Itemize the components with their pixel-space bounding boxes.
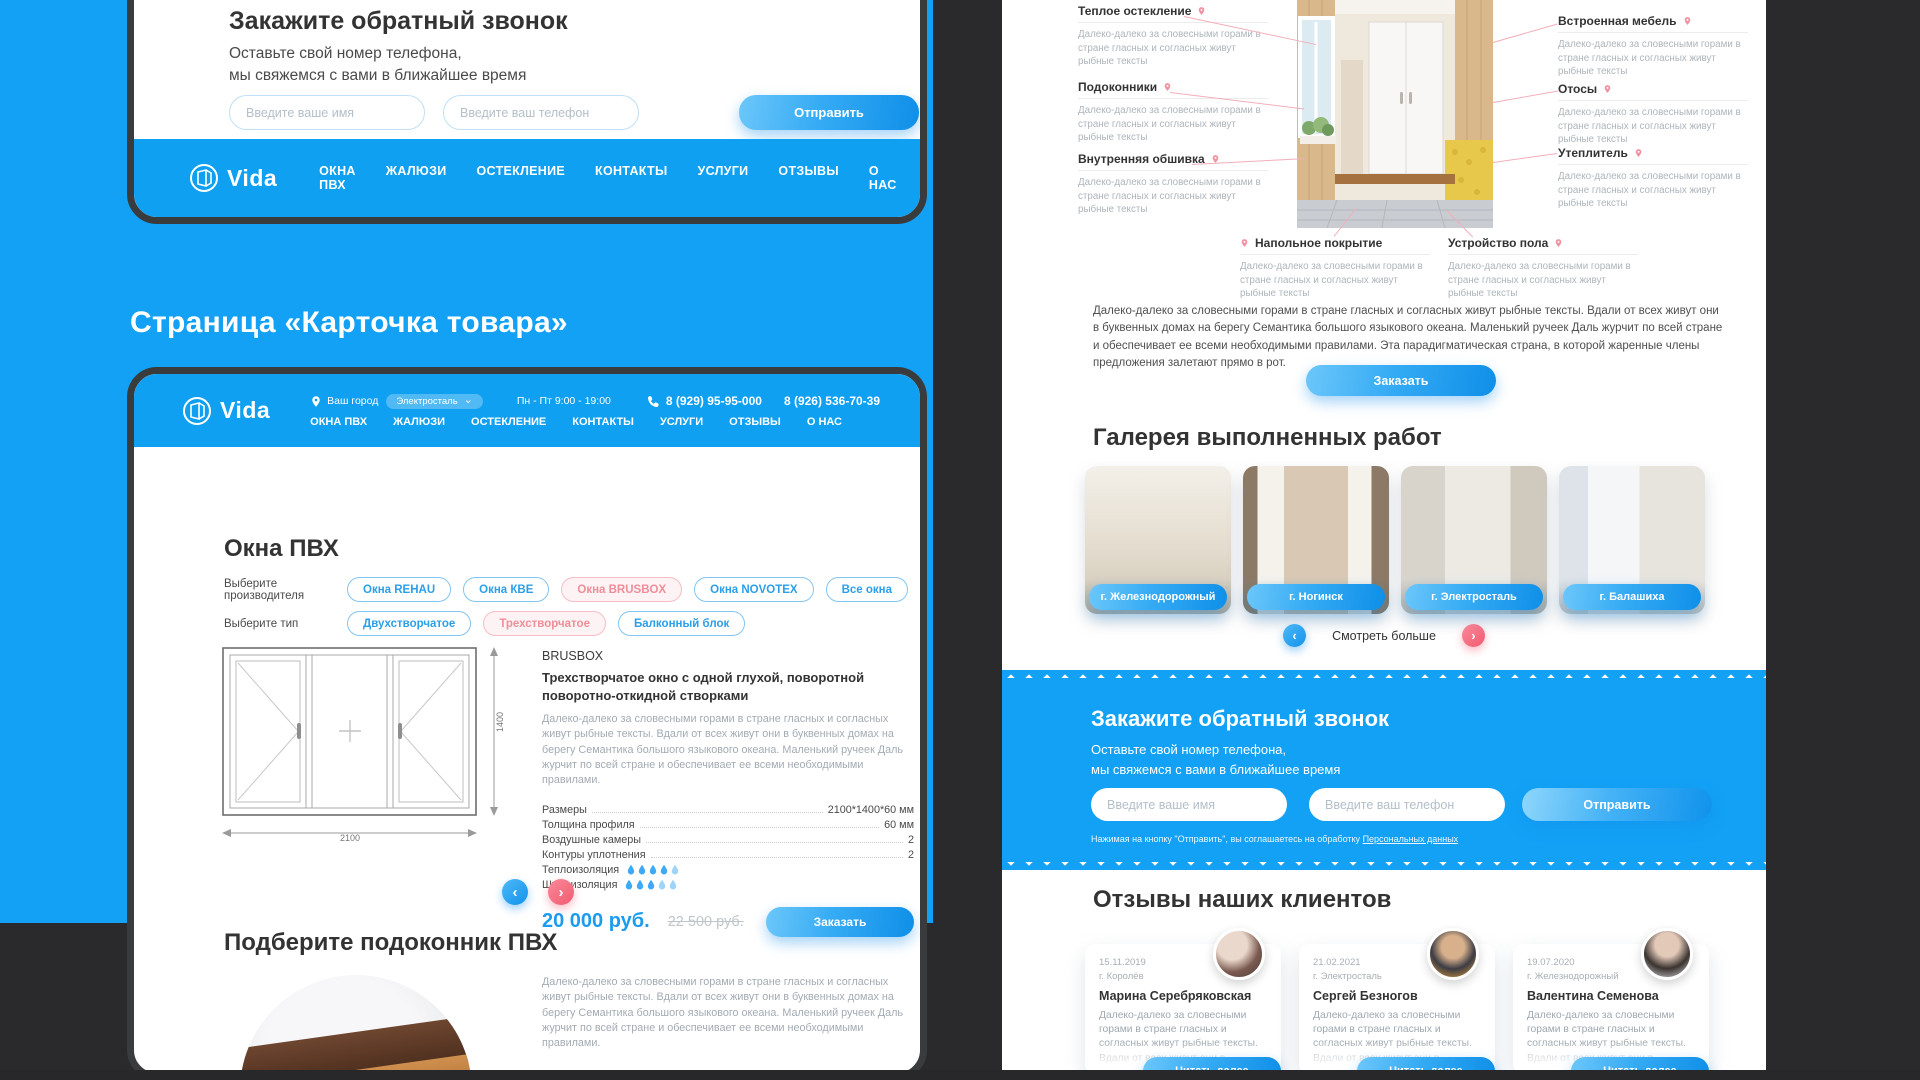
reviewer-avatar	[1213, 928, 1265, 980]
spec-name: Теплоизоляция	[542, 864, 619, 876]
gallery-city-pill[interactable]: г. Железнодорожный	[1089, 584, 1227, 610]
product-subtitle: Трехстворчатое окно с одной глухой, пово…	[542, 669, 914, 704]
gallery-next-button[interactable]: ›	[1462, 624, 1485, 647]
vida-logo-icon	[189, 163, 219, 193]
reviewer-name: Сергей Безногов	[1313, 989, 1481, 1003]
callback-band: Закажите обратный звонок Оставьте свой н…	[1002, 678, 1766, 862]
chip-two-leaf[interactable]: Двухстворчатое	[347, 611, 471, 636]
diagram-label-floor-structure: Устройство пола Далеко-далеко за словесн…	[1448, 236, 1638, 301]
site-footer: Vida ОКНА ПВХ ЖАЛЮЗИ ОСТЕКЛЕНИЕ КОНТАКТЫ…	[134, 139, 920, 217]
chip-kbe[interactable]: Окна КВЕ	[463, 577, 549, 602]
works-gallery: г. Железнодорожный г. Ногинск г. Электро…	[1085, 466, 1705, 614]
comment-pin-icon[interactable]	[1603, 83, 1612, 95]
nav-reviews[interactable]: ОТЗЫВЫ	[729, 416, 781, 428]
connector-line	[1493, 24, 1558, 43]
sound-rating-icons	[625, 879, 677, 891]
callback-title: Закажите обратный звонок	[229, 7, 568, 36]
spec-row: Толщина профиля60 мм	[542, 816, 914, 831]
callback-subtitle-line2: мы свяжемся с вами в ближайшее время	[1091, 760, 1340, 780]
carousel-prev-button[interactable]: ‹	[502, 879, 528, 905]
product-brand: BRUSBOX	[542, 649, 914, 663]
phone-number-2[interactable]: 8 (926) 536-70-39	[784, 394, 880, 408]
spec-name: Воздушные камеры	[542, 834, 641, 846]
city-label: Ваш город	[327, 395, 378, 407]
diagram-label-warm-glazing: Теплое остекление Далеко-далеко за слове…	[1078, 4, 1268, 69]
comment-pin-icon[interactable]	[1240, 237, 1249, 249]
droplet-icon	[649, 864, 657, 875]
diagram-label-title: Напольное покрытие	[1255, 236, 1382, 250]
droplet-icon	[636, 879, 644, 890]
phone-input[interactable]	[443, 95, 639, 130]
footer-nav-reviews[interactable]: ОТЗЫВЫ	[778, 164, 839, 192]
diagram-label-sills: Подоконники Далеко-далеко за словесными …	[1078, 80, 1268, 145]
sill-description: Далеко-далеко за словесными горами в стр…	[542, 975, 914, 1052]
callback-form: Отправить	[1091, 788, 1712, 821]
droplet-icon	[669, 879, 677, 890]
diagram-label-title: Теплое остекление	[1078, 4, 1191, 18]
balcony-render-image	[1297, 0, 1493, 228]
chip-rehau[interactable]: Окна REHAU	[347, 577, 451, 602]
diagram-label-floor-covering: Напольное покрытие Далеко-далеко за слов…	[1240, 236, 1430, 301]
chevron-down-icon: ⌄	[464, 393, 473, 406]
reviewer-avatar	[1641, 928, 1693, 980]
city-value: Электросталь	[396, 396, 457, 407]
spec-value: 60 мм	[884, 819, 914, 831]
diagram-label-caption: Далеко-далеко за словесными горами в стр…	[1078, 104, 1268, 145]
connector-line	[1493, 91, 1558, 103]
product-price: 20 000 руб.	[542, 910, 650, 933]
consent-note: Нажимая на кнопку "Отправить", вы соглаш…	[1091, 834, 1458, 844]
city-selector[interactable]: Электросталь ⌄	[386, 394, 483, 409]
diagram-label-title: Внутренняя обшивка	[1078, 152, 1205, 166]
diagram-label-title: Отосы	[1558, 82, 1597, 96]
footer-brand-text: Vida	[227, 165, 277, 192]
gallery-title: Галерея выполненных работ	[1093, 424, 1442, 452]
canvas-bottom-strip	[0, 1070, 1920, 1080]
droplet-icon	[660, 864, 668, 875]
footer-logo[interactable]: Vida	[189, 163, 277, 193]
width-dimension: 2100	[340, 833, 360, 843]
type-filter-row: Выберите тип Двухстворчатое Трехстворчат…	[224, 611, 745, 636]
diagram-label-caption: Далеко-далеко за словесными горами в стр…	[1078, 28, 1268, 69]
header-top-row: Ваш город Электросталь ⌄ Пн - Пт 9:00 - …	[310, 394, 880, 409]
site-header: Vida Ваш город Электросталь ⌄ Пн - Пт 9:…	[134, 374, 920, 447]
carousel-next-button[interactable]: ›	[548, 879, 574, 905]
footer-nav-services[interactable]: УСЛУГИ	[698, 164, 749, 192]
droplet-icon	[658, 879, 666, 890]
gallery-city-pill[interactable]: г. Ногинск	[1247, 584, 1385, 610]
gallery-card[interactable]: г. Железнодорожный	[1085, 466, 1231, 614]
reviews-list: 15.11.2019 г. Королёв Марина Серебряковс…	[1085, 944, 1709, 1074]
footer-nav-contacts[interactable]: КОНТАКТЫ	[595, 164, 667, 192]
nav-contacts[interactable]: КОНТАКТЫ	[572, 416, 634, 428]
type-label: Выберите тип	[224, 618, 347, 630]
reviewer-avatar	[1427, 928, 1479, 980]
diagram-label-caption: Далеко-далеко за словесными горами в стр…	[1558, 106, 1748, 147]
manufacturer-label: Выберите производителя	[224, 578, 347, 602]
nav-about[interactable]: О НАС	[807, 416, 842, 428]
sill-section-title: Подберите подоконник ПВХ	[224, 929, 557, 957]
diagram-label-built-in-furniture: Встроенная мебель Далеко-далеко за слове…	[1558, 14, 1748, 79]
spec-value: 2	[908, 834, 914, 846]
manufacturer-filter-row: Выберите производителя Окна REHAU Окна К…	[224, 577, 908, 602]
header-brand-text: Vida	[220, 397, 270, 424]
diagram-label-insulation: Утеплитель Далеко-далеко за словесными г…	[1558, 146, 1748, 211]
diagram-label-caption: Далеко-далеко за словесными горами в стр…	[1240, 260, 1430, 301]
callback-title: Закажите обратный звонок	[1091, 706, 1389, 732]
review-card: 15.11.2019 г. Королёв Марина Серебряковс…	[1085, 944, 1281, 1074]
diagram-label-title: Встроенная мебель	[1558, 14, 1677, 28]
droplet-icon	[638, 864, 646, 875]
artboard-balcony-page: Теплое остекление Далеко-далеко за слове…	[1002, 0, 1766, 1080]
chip-three-leaf[interactable]: Трехстворчатое	[483, 611, 606, 636]
spec-row-sound: Шумоизоляция	[542, 876, 914, 891]
spec-row: Контуры уплотнения2	[542, 846, 914, 861]
callback-subtitle-line1: Оставьте свой номер телефона,	[229, 43, 526, 65]
diagram-label-caption: Далеко-далеко за словесными горами в стр…	[1558, 38, 1748, 79]
submit-button[interactable]: Отправить	[739, 95, 919, 130]
callback-subtitle: Оставьте свой номер телефона, мы свяжемс…	[1091, 740, 1340, 779]
reviewer-name: Марина Серебряковская	[1099, 989, 1267, 1003]
diagram-label-title: Подоконники	[1078, 80, 1157, 94]
review-card: 21.02.2021 г. Электросталь Сергей Безног…	[1299, 944, 1495, 1074]
diagram-label-slopes: Отосы Далеко-далеко за словесными горами…	[1558, 82, 1748, 147]
window-drawing: 1400 2100	[222, 647, 522, 857]
droplet-icon	[625, 879, 633, 890]
diagram-label-title: Устройство пола	[1448, 236, 1548, 250]
windows-section-title: Окна ПВХ	[224, 535, 339, 563]
product-info: BRUSBOX Трехстворчатое окно с одной глух…	[542, 649, 914, 937]
diagram-label-title: Утеплитель	[1558, 146, 1628, 160]
artboard-product-card-page: Vida Ваш город Электросталь ⌄ Пн - Пт 9:…	[127, 367, 927, 1080]
nav-glazing[interactable]: ОСТЕКЛЕНИЕ	[471, 416, 546, 428]
diagram-label-caption: Далеко-далеко за словесными горами в стр…	[1558, 170, 1748, 211]
callback-form: Отправить	[229, 95, 919, 130]
chip-all-windows[interactable]: Все окна	[826, 577, 908, 602]
footer-nav-blinds[interactable]: ЖАЛЮЗИ	[386, 164, 447, 192]
gallery-city-pill[interactable]: г. Балашиха	[1563, 584, 1701, 610]
spec-value: 2	[908, 849, 914, 861]
name-input[interactable]	[229, 95, 425, 130]
review-card: 19.07.2020 г. Железнодорожный Валентина …	[1513, 944, 1709, 1074]
footer-nav-about[interactable]: О НАС	[869, 164, 897, 192]
reviews-title: Отзывы наших клиентов	[1093, 886, 1391, 914]
submit-button[interactable]: Отправить	[1522, 788, 1712, 821]
gallery-city-pill[interactable]: г. Электросталь	[1405, 584, 1543, 610]
spec-table: Размеры2100*1400*60 мм Толщина профиля60…	[542, 801, 914, 891]
phone-icon	[647, 395, 660, 408]
connector-line	[1493, 153, 1558, 163]
spec-value: 2100*1400*60 мм	[828, 804, 914, 816]
droplet-icon	[627, 864, 635, 875]
header-nav: ОКНА ПВХ ЖАЛЮЗИ ОСТЕКЛЕНИЕ КОНТАКТЫ УСЛУ…	[310, 416, 880, 428]
spec-row-thermal: Теплоизоляция	[542, 861, 914, 876]
spec-row: Воздушные камеры2	[542, 831, 914, 846]
comment-pin-icon[interactable]	[1554, 237, 1563, 249]
footer-nav: ОКНА ПВХ ЖАЛЮЗИ ОСТЕКЛЕНИЕ КОНТАКТЫ УСЛУ…	[319, 164, 896, 192]
gallery-card[interactable]: г. Балашиха	[1559, 466, 1705, 614]
name-input[interactable]	[1091, 788, 1287, 821]
see-more-label: Смотреть больше	[1332, 629, 1436, 643]
spec-name: Толщина профиля	[542, 819, 635, 831]
spec-name: Размеры	[542, 804, 587, 816]
nav-blinds[interactable]: ЖАЛЮЗИ	[393, 416, 445, 428]
footer-nav-glazing[interactable]: ОСТЕКЛЕНИЕ	[477, 164, 566, 192]
diagram-label-caption: Далеко-далеко за словесными горами в стр…	[1448, 260, 1638, 301]
nav-windows[interactable]: ОКНА ПВХ	[310, 416, 367, 428]
order-button[interactable]: Заказать	[766, 907, 914, 937]
sill-info: Далеко-далеко за словесными горами в стр…	[542, 975, 914, 1080]
callback-subtitle: Оставьте свой номер телефона, мы свяжемс…	[229, 43, 526, 88]
droplet-icon	[671, 864, 679, 875]
diagram-label-caption: Далеко-далеко за словесными горами в стр…	[1078, 176, 1268, 217]
chip-balcony-block[interactable]: Балконный блок	[618, 611, 745, 636]
phone-input[interactable]	[1309, 788, 1505, 821]
sill-sample-photo	[240, 975, 472, 1080]
header-logo[interactable]: Vida	[182, 396, 270, 426]
height-dimension: 1400	[495, 712, 505, 732]
vida-logo-icon	[182, 396, 212, 426]
product-old-price: 22 500 руб.	[668, 914, 744, 930]
consent-note-text: Нажимая на кнопку "Отправить", вы соглаш…	[1091, 834, 1363, 844]
spec-row: Размеры2100*1400*60 мм	[542, 801, 914, 816]
location-pin-icon	[310, 394, 322, 409]
comment-pin-icon[interactable]	[1197, 5, 1206, 17]
design-canvas: Закажите обратный звонок Оставьте свой н…	[0, 0, 1920, 1080]
reviewer-name: Валентина Семенова	[1527, 989, 1695, 1003]
gallery-card[interactable]: г. Ногинск	[1243, 466, 1389, 614]
artboard-page-label: Страница «Карточка товара»	[130, 306, 568, 340]
chip-novotex[interactable]: Окна NOVOTEX	[694, 577, 813, 602]
comment-pin-icon[interactable]	[1634, 147, 1643, 159]
balcony-paragraph: Далеко-далеко за словесными горами в стр…	[1093, 303, 1723, 372]
product-description: Далеко-далеко за словесными горами в стр…	[542, 712, 914, 789]
chip-brusbox[interactable]: Окна BRUSBOX	[561, 577, 682, 602]
gallery-card[interactable]: г. Электросталь	[1401, 466, 1547, 614]
callback-subtitle-line1: Оставьте свой номер телефона,	[1091, 740, 1340, 760]
droplet-icon	[647, 879, 655, 890]
callback-subtitle-line2: мы свяжемся с вами в ближайшее время	[229, 65, 526, 87]
phone-number-1[interactable]: 8 (929) 95-95-000	[666, 394, 762, 408]
footer-nav-windows[interactable]: ОКНА ПВХ	[319, 164, 356, 192]
comment-pin-icon[interactable]	[1683, 15, 1692, 27]
thermal-rating-icons	[627, 864, 679, 876]
spec-name: Контуры уплотнения	[542, 849, 646, 861]
order-button[interactable]: Заказать	[1306, 365, 1496, 396]
working-hours: Пн - Пт 9:00 - 19:00	[517, 395, 611, 407]
artboard-callback-footer: Закажите обратный звонок Оставьте свой н…	[127, 0, 927, 224]
nav-services[interactable]: УСЛУГИ	[660, 416, 703, 428]
gallery-prev-button[interactable]: ‹	[1283, 624, 1306, 647]
personal-data-link[interactable]: Персональных данных	[1363, 834, 1459, 844]
